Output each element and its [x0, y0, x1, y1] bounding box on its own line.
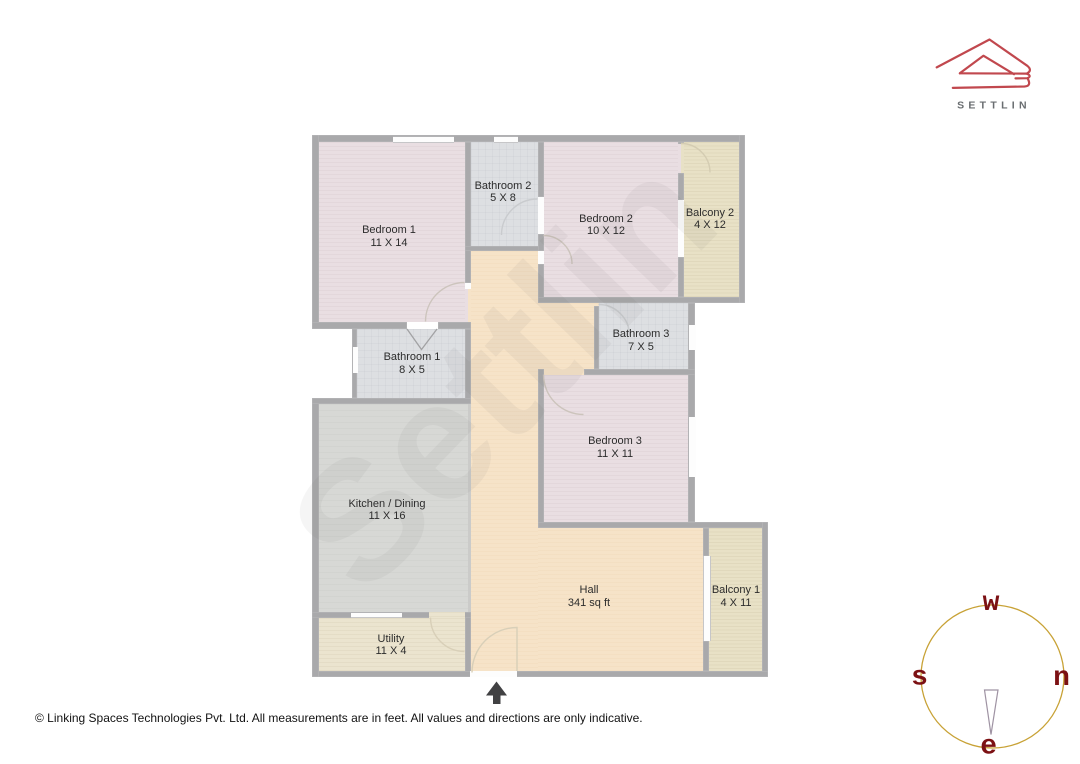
svg-text:e: e: [980, 732, 997, 763]
svg-text:w: w: [983, 594, 1000, 619]
svg-text:SETTLIN: SETTLIN: [957, 100, 1031, 112]
svg-text:n: n: [1053, 663, 1070, 694]
svg-text:s: s: [911, 663, 928, 694]
